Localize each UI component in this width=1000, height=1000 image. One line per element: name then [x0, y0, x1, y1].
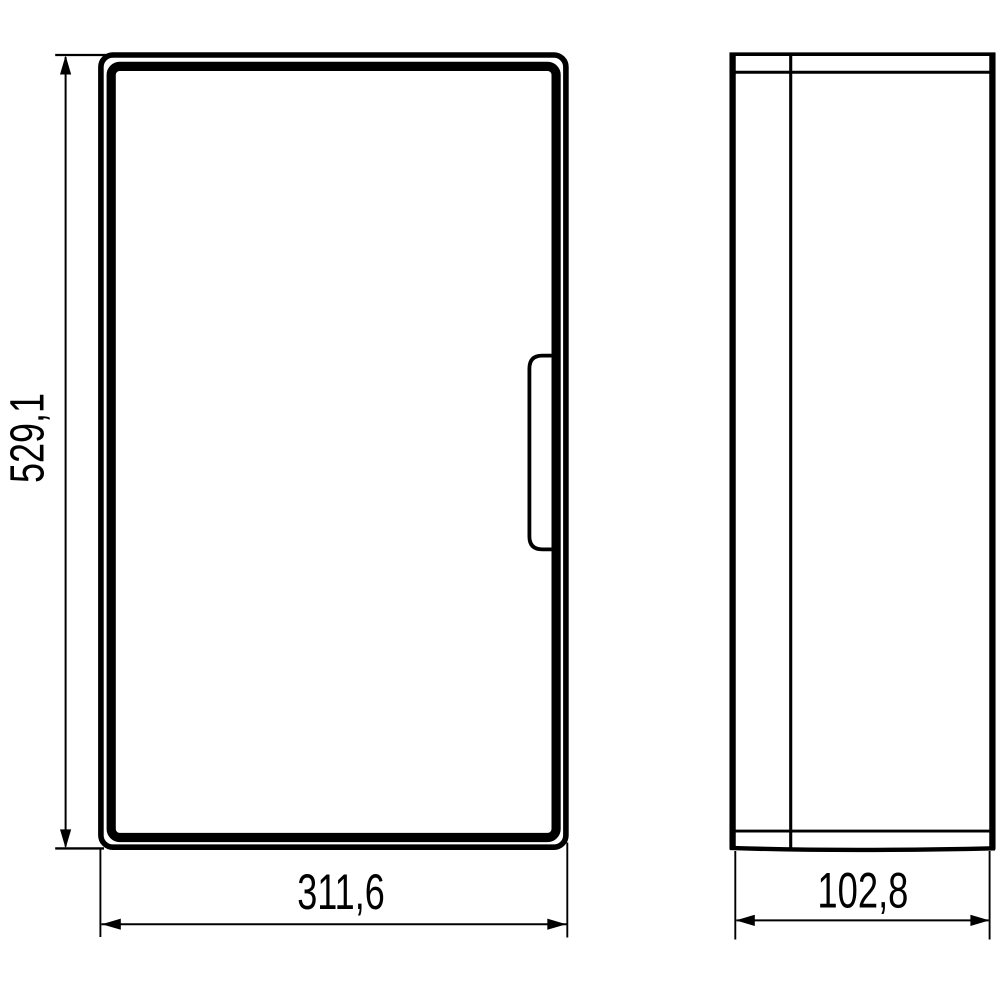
svg-text:529,1: 529,1	[1, 393, 55, 483]
svg-text:311,6: 311,6	[297, 864, 385, 920]
svg-text:102,8: 102,8	[817, 863, 908, 919]
